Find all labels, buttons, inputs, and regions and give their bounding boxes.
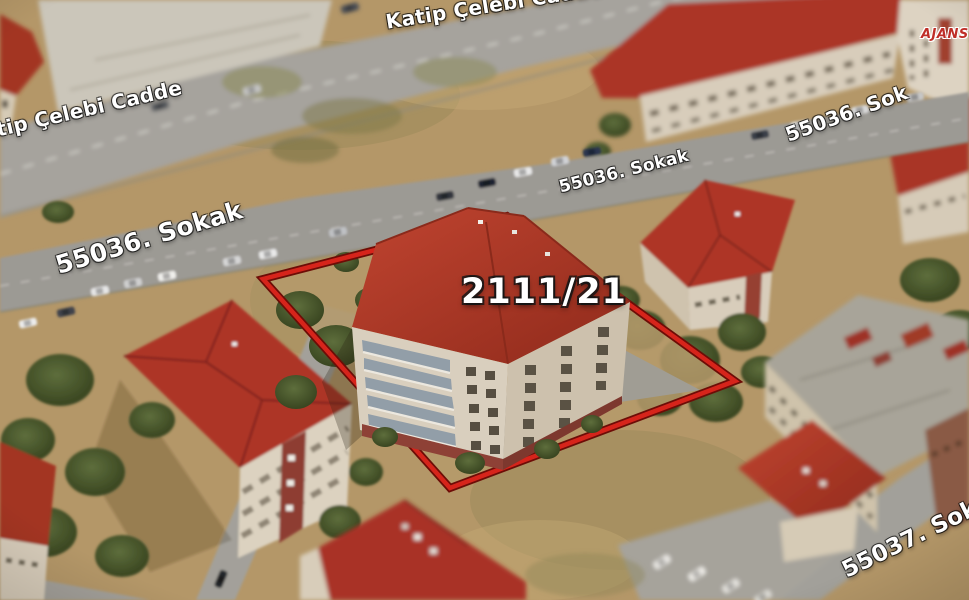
parcel-number-label: 2111/21 [461, 272, 627, 312]
aerial-photo: Katip Çelebi Cadde tip Çelebi Cadde 5503… [0, 0, 969, 600]
watermark-text: AJANS [921, 27, 969, 42]
ajans-watermark: AJANS [921, 27, 969, 42]
